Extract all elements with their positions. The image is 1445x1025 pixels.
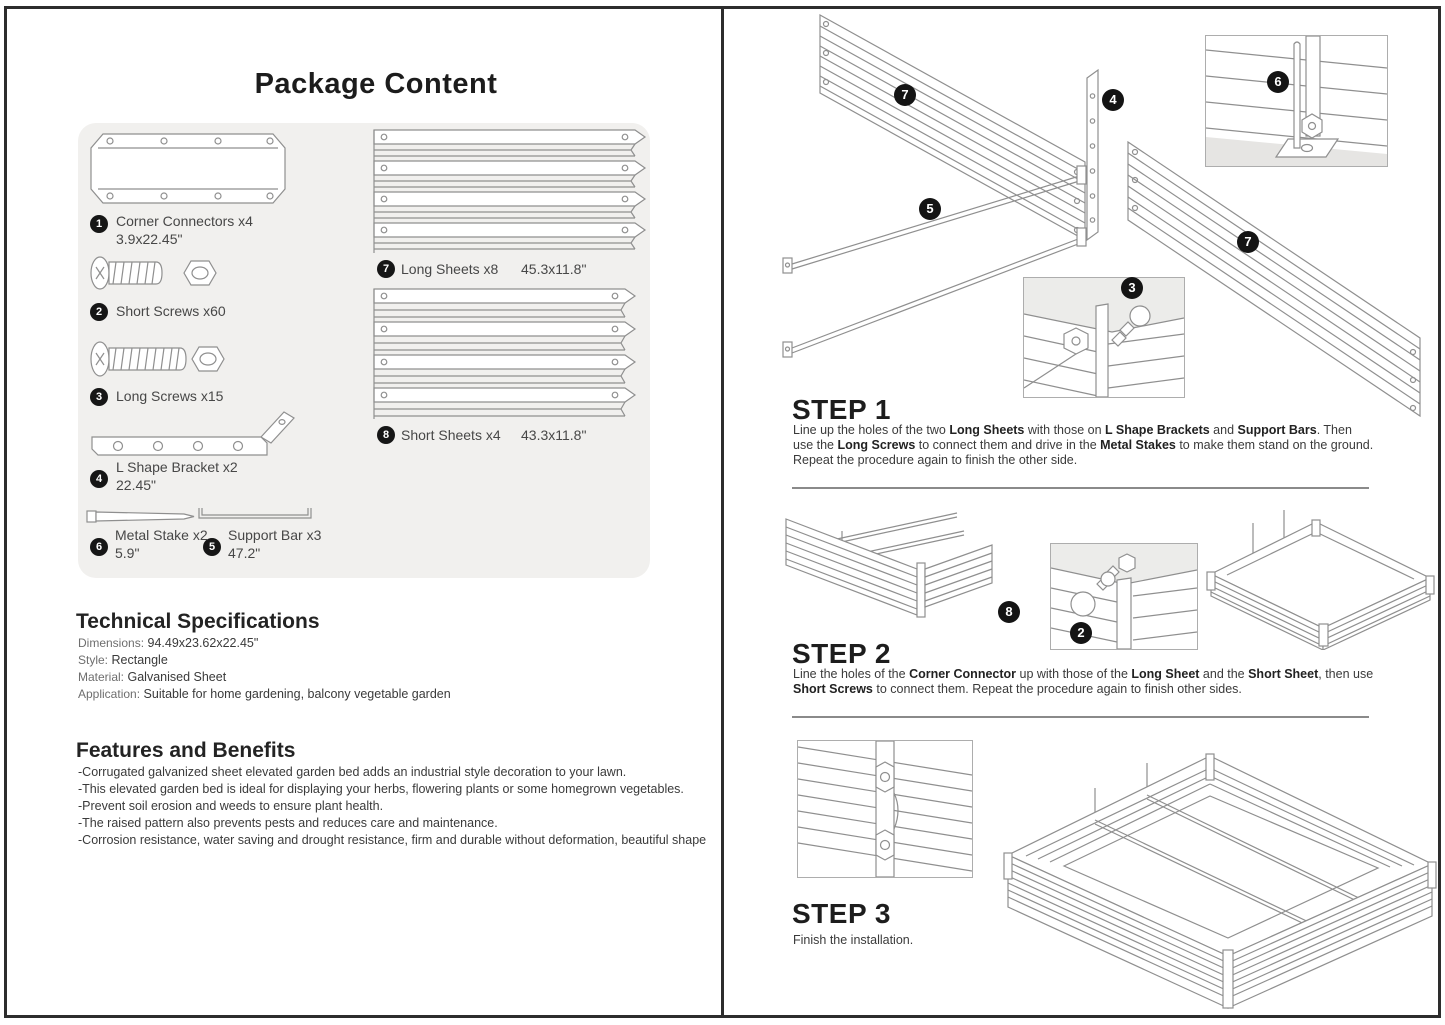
step3-finished-bed-drawing [1000, 748, 1442, 1012]
step3-title: STEP 3 [792, 898, 891, 930]
step1-screw-inset [1023, 277, 1185, 398]
part-1-size: 3.9x22.45" [116, 231, 182, 247]
part-8-badge: 8 [377, 426, 395, 444]
package-content-title: Package Content [90, 68, 662, 101]
step2-text: Line the holes of the Corner Connector u… [793, 667, 1385, 697]
callout-6: 6 [1267, 71, 1289, 93]
feature-item: -Corrosion resistance, water saving and … [78, 832, 718, 848]
part-4-size: 22.45" [116, 477, 156, 493]
part-6-name: Metal Stake x2 [115, 527, 208, 543]
part-8-name: Short Sheets x4 [401, 427, 501, 443]
long-screw-drawing [88, 339, 236, 381]
step1-title: STEP 1 [792, 394, 891, 426]
step1-text: Line up the holes of the two Long Sheets… [793, 423, 1375, 468]
part-3-name: Long Screws x15 [116, 388, 223, 404]
callout-8: 8 [998, 601, 1020, 623]
part-5-name: Support Bar x3 [228, 527, 321, 543]
spec-style: Style: Rectangle [78, 653, 168, 667]
part-6-size: 5.9" [115, 545, 139, 561]
spec-application: Application: Suitable for home gardening… [78, 687, 451, 701]
callout-7-left: 7 [894, 84, 916, 106]
spec-dimensions: Dimensions: 94.49x23.62x22.45" [78, 636, 258, 650]
panel-divider [721, 6, 724, 1018]
feature-item: -Prevent soil erosion and weeds to ensur… [78, 798, 718, 814]
metal-stake-drawing [86, 508, 198, 526]
long-sheets-drawing [373, 129, 651, 255]
part-8-size: 43.3x11.8" [521, 427, 586, 443]
part-1-badge: 1 [90, 215, 108, 233]
spec-material: Material: Galvanised Sheet [78, 670, 226, 684]
corner-connector-drawing [88, 132, 288, 205]
part-5-badge: 5 [203, 538, 221, 556]
short-sheets-drawing [373, 288, 641, 420]
callout-4: 4 [1102, 89, 1124, 111]
part-3-badge: 3 [90, 388, 108, 406]
feature-item: -The raised pattern also prevents pests … [78, 815, 718, 831]
l-bracket-drawing [90, 410, 298, 460]
part-5-size: 47.2" [228, 545, 260, 561]
part-7-size: 45.3x11.8" [521, 261, 586, 277]
callout-5: 5 [919, 198, 941, 220]
step1-stake-inset [1205, 35, 1388, 167]
step2-frame-drawing [1203, 510, 1438, 650]
support-bar-drawing [196, 505, 314, 525]
part-2-name: Short Screws x60 [116, 303, 226, 319]
part-7-name: Long Sheets x8 [401, 261, 498, 277]
callout-3: 3 [1121, 277, 1143, 299]
step2-partial-assembly-drawing [782, 505, 1047, 648]
part-1-name: Corner Connectors x4 [116, 213, 253, 229]
manual-page: Package Content 1 Corner Connectors x4 3… [0, 0, 1445, 1025]
step3-text: Finish the installation. [793, 933, 1193, 948]
specs-title: Technical Specifications [76, 610, 320, 634]
part-4-badge: 4 [90, 470, 108, 488]
features-title: Features and Benefits [76, 739, 295, 763]
separator-1 [792, 487, 1369, 489]
part-7-badge: 7 [377, 260, 395, 278]
callout-2: 2 [1070, 622, 1092, 644]
part-4-name: L Shape Bracket x2 [116, 459, 238, 475]
feature-item: -Corrugated galvanized sheet elevated ga… [78, 764, 718, 780]
step2-title: STEP 2 [792, 638, 891, 670]
part-2-badge: 2 [90, 303, 108, 321]
short-screw-drawing [88, 255, 228, 293]
part-6-badge: 6 [90, 538, 108, 556]
step3-bolt-inset [797, 740, 973, 878]
feature-item: -This elevated garden bed is ideal for d… [78, 781, 718, 797]
callout-7-right: 7 [1237, 231, 1259, 253]
separator-2 [792, 716, 1369, 718]
